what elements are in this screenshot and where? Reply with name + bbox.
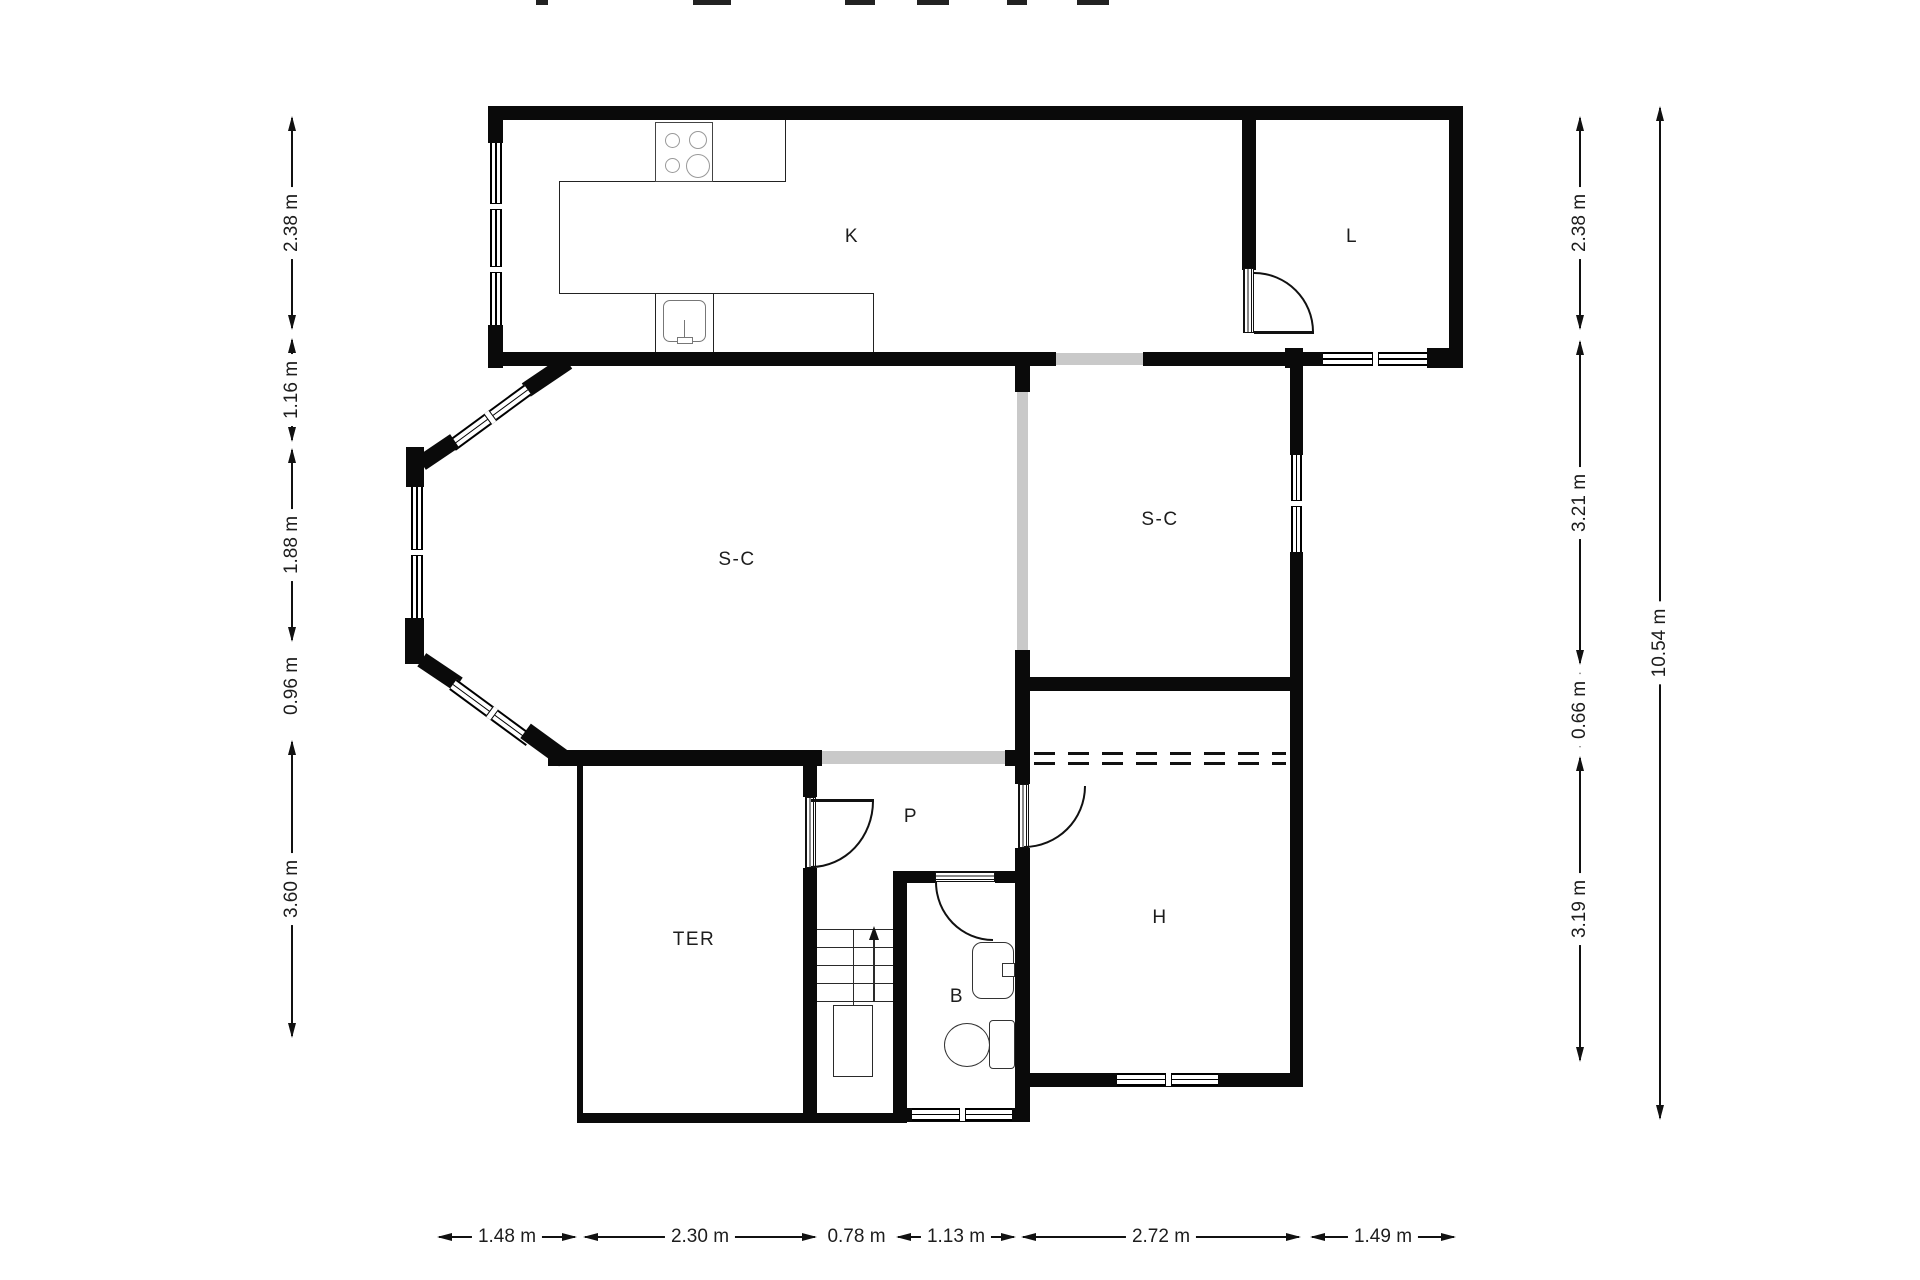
opening-living-to-hall — [822, 751, 1005, 764]
cropped-text-fragment — [1007, 0, 1027, 5]
bedroom-window — [1117, 1073, 1218, 1086]
room-label-hall: P — [904, 806, 918, 828]
wall-kitchen-laundry-divider — [1242, 118, 1256, 270]
bay-window-upper — [448, 385, 531, 451]
wall-living-bottom — [548, 750, 822, 766]
counter-edge — [873, 293, 874, 352]
bathroom-window — [912, 1108, 1012, 1121]
cropped-text-fragment — [917, 0, 949, 5]
room-label-terrace: TER — [673, 929, 716, 951]
room-label-kitchen: K — [845, 226, 859, 248]
floor-plan: K L S-C S-C P TER B H 2.38 m 1.16 m 1.88… — [0, 0, 1920, 1280]
opening-living-divider — [1017, 392, 1028, 650]
dim-label: 3.19 m — [1568, 873, 1592, 945]
cropped-text-fragment — [1077, 0, 1109, 5]
cropped-text-fragment — [693, 0, 731, 5]
room-label-laundry: L — [1346, 226, 1358, 248]
dim-label: 1.48 m — [472, 1226, 542, 1248]
wall-terrace-right-top — [803, 750, 817, 797]
wall-kitchen-bottom — [490, 352, 1056, 366]
door-frame-bathroom — [935, 871, 995, 882]
stairs-tread — [817, 983, 893, 984]
door-frame-laundry — [1243, 268, 1254, 333]
dim-label: 1.88 m — [280, 509, 304, 581]
wall-living-divider-lower — [1015, 650, 1030, 783]
cropped-text-fragment — [536, 0, 548, 5]
closet-dashed-line — [1034, 762, 1286, 765]
stairs-direction-line — [873, 938, 875, 1002]
counter-edge — [559, 181, 560, 293]
stairs-tread — [817, 965, 893, 966]
kitchen-sink-icon — [663, 300, 706, 342]
living-right-window — [1291, 455, 1302, 552]
dim-label: 2.38 m — [280, 187, 304, 259]
door-swing-bedroom — [1024, 786, 1086, 848]
dim-label: 2.30 m — [665, 1226, 735, 1248]
wall-living-divider-stub — [1015, 365, 1030, 392]
wall-hall-bedroom — [1015, 766, 1030, 784]
faucet-icon — [1002, 963, 1015, 977]
dim-label: 1.49 m — [1348, 1226, 1418, 1248]
stairs-up-arrow-icon — [869, 926, 879, 940]
cropped-text-fragment — [845, 0, 875, 5]
wall-right-junction — [1285, 348, 1303, 368]
wall-right-exterior — [1290, 366, 1303, 455]
stairs-center-line — [853, 929, 854, 1005]
wall-right-exterior-top — [1449, 106, 1463, 368]
stairs-tread — [817, 929, 893, 930]
kitchen-window — [490, 143, 502, 325]
room-label-bathroom: B — [950, 986, 964, 1008]
dim-label: 2.72 m — [1126, 1226, 1196, 1248]
counter-edge — [785, 120, 786, 182]
closet-dashed-line — [1034, 752, 1286, 755]
sink-cell-divider — [713, 293, 714, 352]
door-swing-laundry — [1254, 272, 1314, 332]
wall-terrace-bottom — [577, 1113, 907, 1123]
dim-label: 3.60 m — [280, 853, 304, 925]
wall-kitchen-left-stub-top — [488, 106, 503, 143]
wall-top-exterior — [488, 106, 1463, 120]
dim-label: 2.38 m — [1568, 187, 1592, 259]
stove-icon — [655, 122, 713, 182]
dim-label: 1.16 m — [280, 354, 304, 426]
stairs-tread — [817, 947, 893, 948]
stairs-tread — [817, 1001, 893, 1002]
dim-label: 3.21 m — [1568, 466, 1592, 538]
wall-bathroom-top-right — [995, 871, 1030, 883]
door-swing-bathroom — [935, 882, 993, 941]
dim-label: 0.66 m — [1568, 674, 1592, 746]
wall-terrace-left — [577, 765, 583, 1123]
wall-stairs-bathroom — [893, 871, 907, 1122]
wall-right-exterior — [1290, 552, 1303, 1087]
room-label-living-left: S-C — [718, 549, 755, 571]
wall-bedroom-top — [1028, 677, 1303, 691]
laundry-window — [1323, 352, 1427, 366]
dim-label: 0.78 m — [821, 1226, 891, 1248]
room-label-bedroom: H — [1152, 907, 1167, 929]
dim-label: 0.96 m — [280, 650, 304, 722]
toilet-tank-icon — [989, 1020, 1015, 1069]
wall-bathroom-top-left — [893, 871, 935, 883]
wall-terrace-right — [803, 868, 817, 1123]
dim-label: 10.54 m — [1648, 602, 1672, 685]
sink-cell-divider — [655, 293, 656, 352]
counter-edge — [559, 293, 873, 294]
dim-label: 1.13 m — [921, 1226, 991, 1248]
door-swing-terrace — [811, 801, 874, 868]
wall-bay-corner — [406, 447, 424, 487]
bay-window-middle — [411, 487, 423, 618]
wall-bay-corner — [405, 618, 424, 664]
stairs-landing — [833, 1005, 873, 1077]
opening-kitchen-to-living — [1056, 353, 1143, 365]
room-label-living-right: S-C — [1141, 509, 1178, 531]
toilet-bowl-icon — [944, 1023, 990, 1067]
